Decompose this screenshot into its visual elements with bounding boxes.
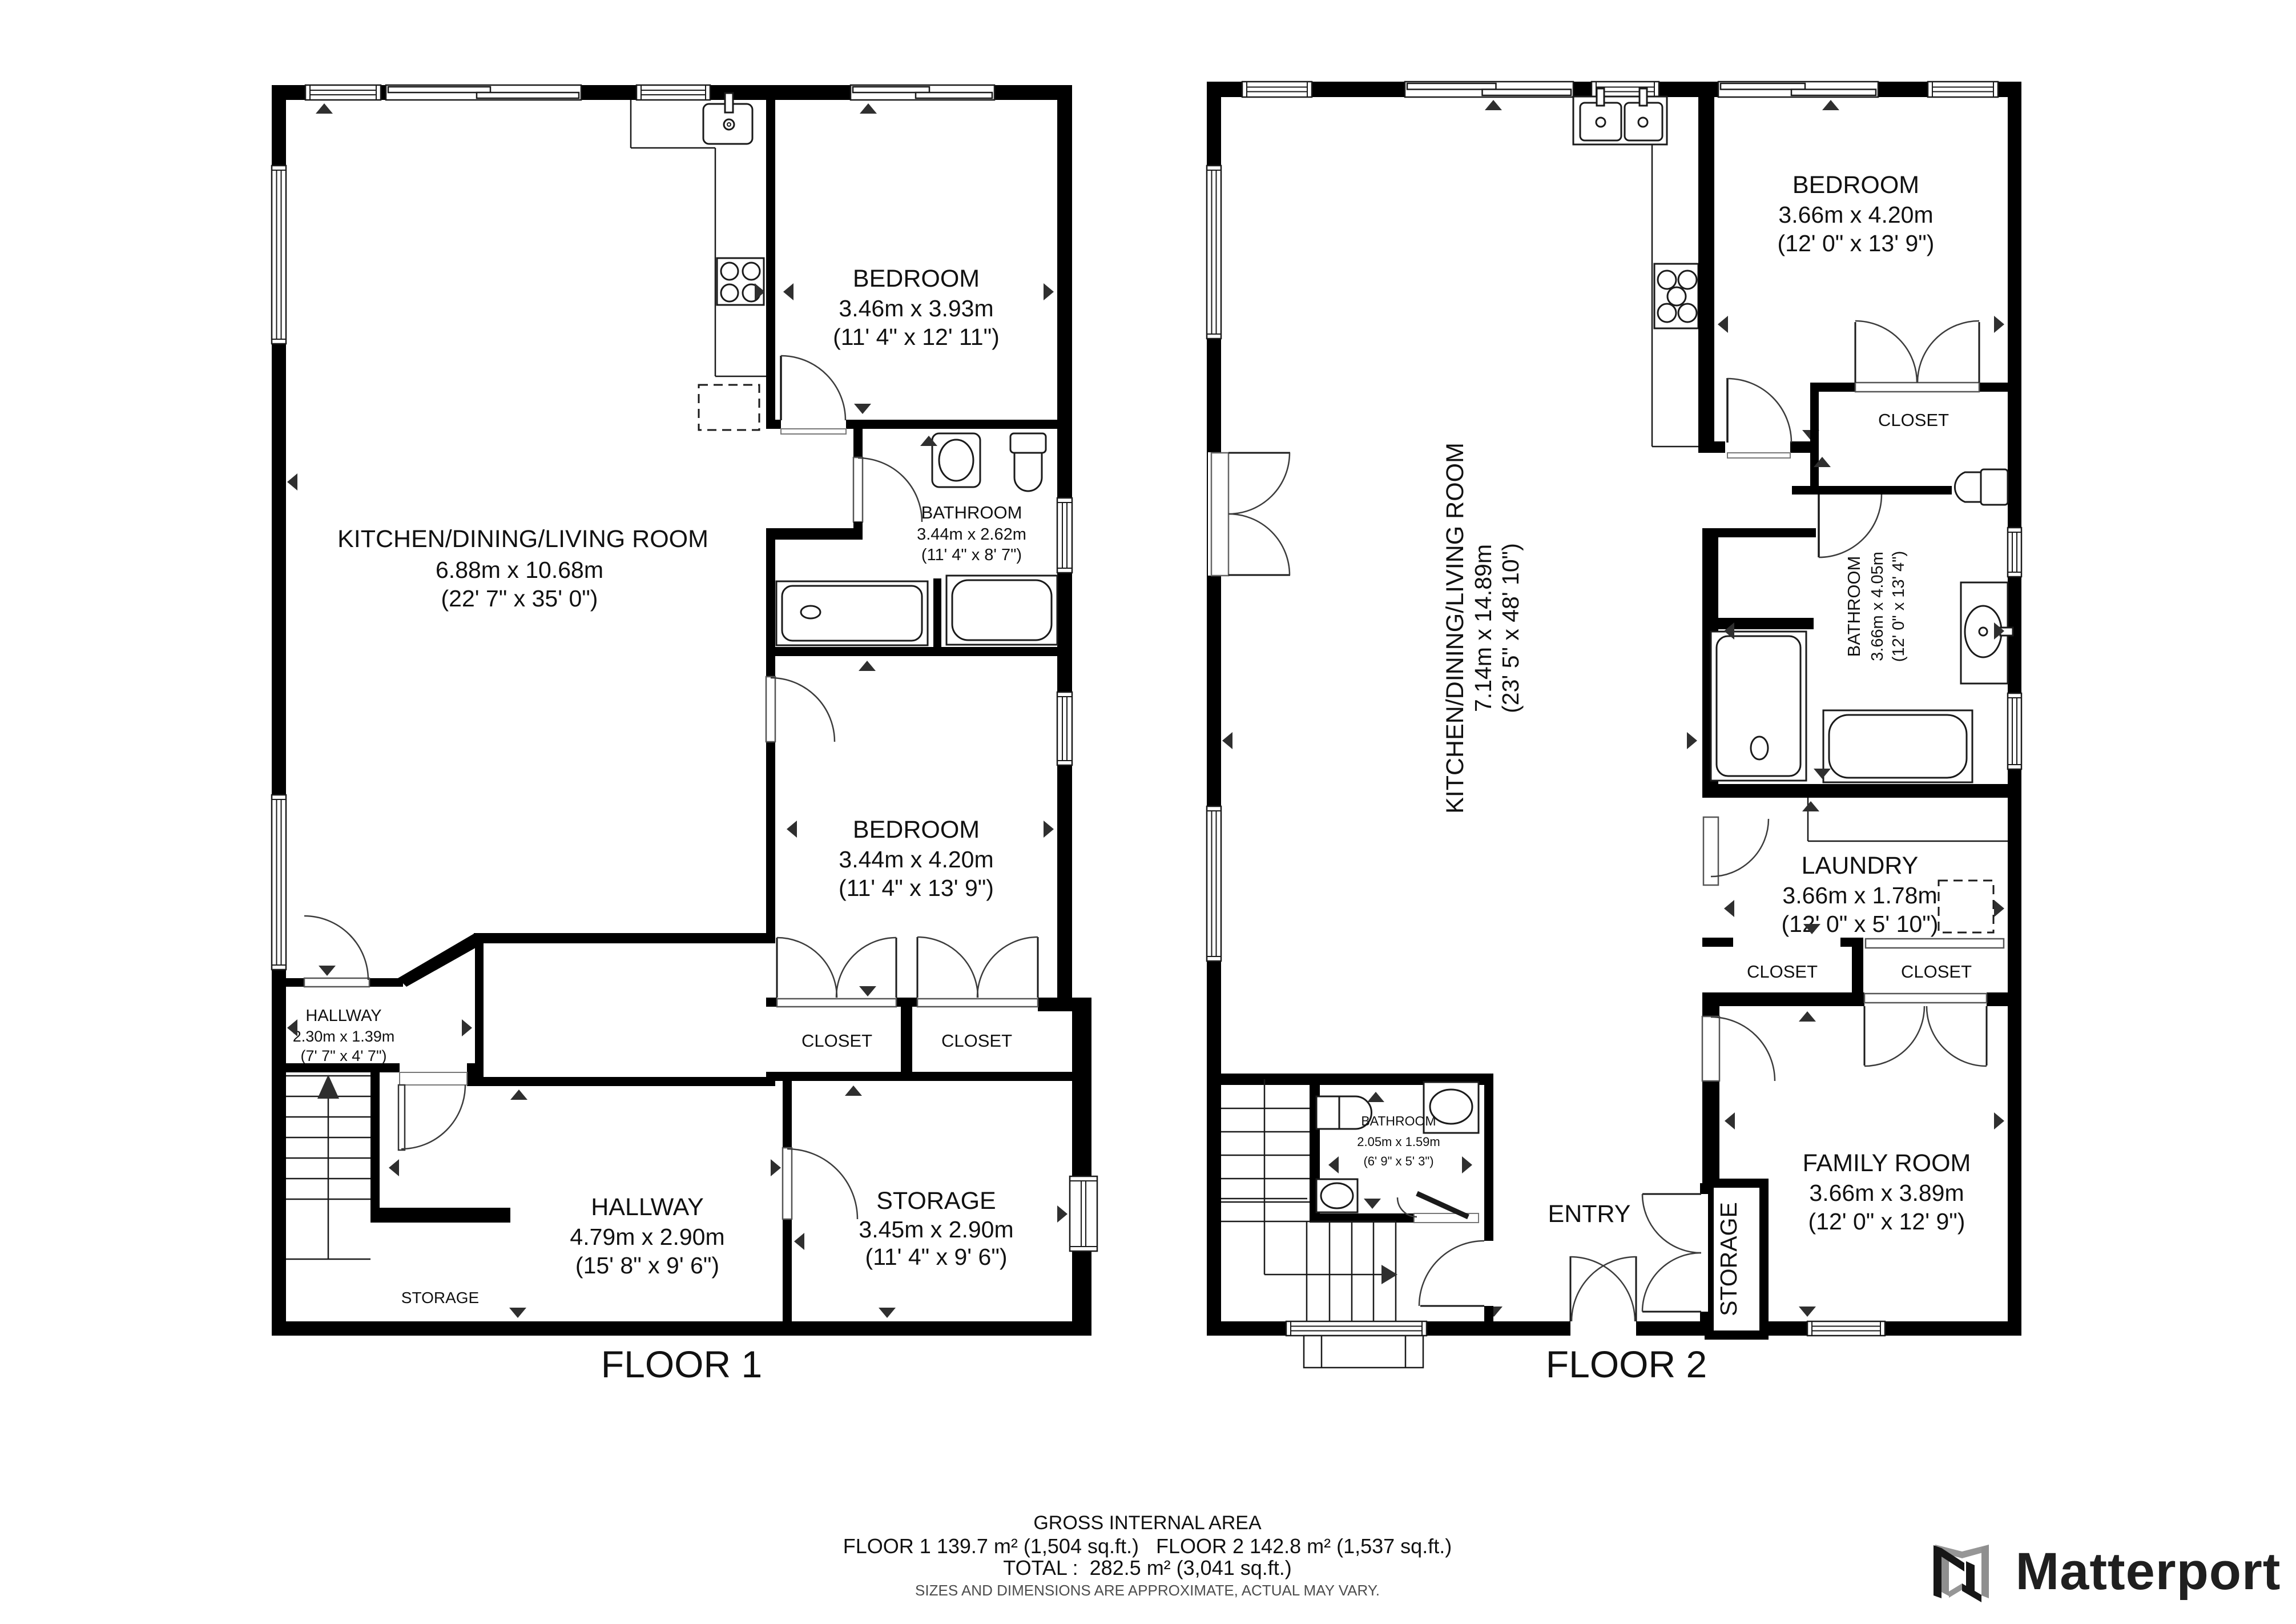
svg-text:CLOSET: CLOSET xyxy=(941,1031,1012,1051)
svg-text:CLOSET: CLOSET xyxy=(801,1031,872,1051)
svg-text:BEDROOM: BEDROOM xyxy=(853,816,980,843)
svg-text:3.45m x 2.90m: 3.45m x 2.90m xyxy=(859,1216,1013,1243)
svg-text:BATHROOM: BATHROOM xyxy=(1844,556,1864,657)
svg-text:CLOSET: CLOSET xyxy=(1901,962,1972,982)
svg-text:(11' 4" x 8' 7"): (11' 4" x 8' 7") xyxy=(921,546,1022,564)
svg-text:SIZES AND DIMENSIONS ARE APPRO: SIZES AND DIMENSIONS ARE APPROXIMATE, AC… xyxy=(915,1582,1380,1599)
svg-text:(11' 4" x 12' 11"): (11' 4" x 12' 11") xyxy=(833,324,1000,350)
svg-text:ENTRY: ENTRY xyxy=(1548,1200,1631,1228)
svg-text:3.44m x 2.62m: 3.44m x 2.62m xyxy=(917,525,1026,544)
svg-text:STORAGE: STORAGE xyxy=(1715,1202,1742,1316)
svg-text:BEDROOM: BEDROOM xyxy=(853,265,980,292)
svg-text:3.66m x 3.89m: 3.66m x 3.89m xyxy=(1809,1180,1964,1206)
svg-text:2.05m x 1.59m: 2.05m x 1.59m xyxy=(1357,1135,1440,1149)
svg-text:HALLWAY: HALLWAY xyxy=(305,1007,381,1025)
svg-text:7.14m x 14.89m: 7.14m x 14.89m xyxy=(1470,544,1496,712)
svg-text:3.44m x 4.20m: 3.44m x 4.20m xyxy=(839,846,993,873)
svg-text:(22' 7" x 35' 0"): (22' 7" x 35' 0") xyxy=(441,585,598,612)
svg-text:Matterport: Matterport xyxy=(2016,1542,2281,1601)
svg-text:(11' 4" x 9' 6"): (11' 4" x 9' 6") xyxy=(865,1244,1007,1270)
svg-text:FLOOR 1: FLOOR 1 xyxy=(601,1343,762,1385)
svg-text:(11' 4" x 13' 9"): (11' 4" x 13' 9") xyxy=(839,875,994,901)
svg-text:(12' 0" x 12' 9"): (12' 0" x 12' 9") xyxy=(1808,1208,1965,1235)
svg-text:CLOSET: CLOSET xyxy=(1747,962,1818,982)
svg-text:FLOOR 1 139.7 m² (1,504 sq.ft.: FLOOR 1 139.7 m² (1,504 sq.ft.) FLOOR 2 … xyxy=(843,1534,1452,1558)
svg-text:LAUNDRY: LAUNDRY xyxy=(1802,852,1919,879)
svg-text:(23' 5" x 48' 10"): (23' 5" x 48' 10") xyxy=(1497,543,1524,713)
svg-text:6.88m x 10.68m: 6.88m x 10.68m xyxy=(436,557,603,583)
svg-text:(15' 8" x 9' 6"): (15' 8" x 9' 6") xyxy=(575,1252,719,1279)
svg-text:(12' 0" x 13' 9"): (12' 0" x 13' 9") xyxy=(1778,230,1935,256)
svg-text:BEDROOM: BEDROOM xyxy=(1793,171,1919,199)
svg-text:BATHROOM: BATHROOM xyxy=(921,503,1022,522)
svg-text:HALLWAY: HALLWAY xyxy=(591,1193,704,1221)
svg-text:3.46m x 3.93m: 3.46m x 3.93m xyxy=(839,295,993,321)
svg-text:2.30m x 1.39m: 2.30m x 1.39m xyxy=(293,1028,395,1045)
svg-text:STORAGE: STORAGE xyxy=(401,1289,479,1307)
svg-text:FAMILY ROOM: FAMILY ROOM xyxy=(1803,1149,1971,1177)
svg-text:KITCHEN/DINING/LIVING ROOM: KITCHEN/DINING/LIVING ROOM xyxy=(337,525,708,553)
svg-text:TOTAL : 282.5 m² (3,041 sq.ft: TOTAL : 282.5 m² (3,041 sq.ft.) xyxy=(1003,1556,1292,1579)
svg-text:3.66m x 4.20m: 3.66m x 4.20m xyxy=(1778,202,1933,228)
svg-text:(6' 9" x 5' 3"): (6' 9" x 5' 3") xyxy=(1363,1154,1433,1168)
svg-text:GROSS INTERNAL AREA: GROSS INTERNAL AREA xyxy=(1033,1512,1262,1534)
svg-text:4.79m x 2.90m: 4.79m x 2.90m xyxy=(570,1224,724,1250)
svg-text:STORAGE: STORAGE xyxy=(876,1187,996,1215)
svg-text:CLOSET: CLOSET xyxy=(1878,410,1949,430)
svg-text:3.66m x 4.05m: 3.66m x 4.05m xyxy=(1868,552,1887,661)
svg-text:(7' 7" x 4' 7"): (7' 7" x 4' 7") xyxy=(300,1047,386,1064)
svg-text:KITCHEN/DINING/LIVING ROOM: KITCHEN/DINING/LIVING ROOM xyxy=(1441,443,1469,814)
svg-text:(12' 0" x 13' 4"): (12' 0" x 13' 4") xyxy=(1890,551,1908,662)
svg-text:FLOOR 2: FLOOR 2 xyxy=(1546,1343,1707,1385)
svg-text:BATHROOM: BATHROOM xyxy=(1361,1114,1436,1128)
svg-text:3.66m x 1.78m: 3.66m x 1.78m xyxy=(1782,882,1937,909)
